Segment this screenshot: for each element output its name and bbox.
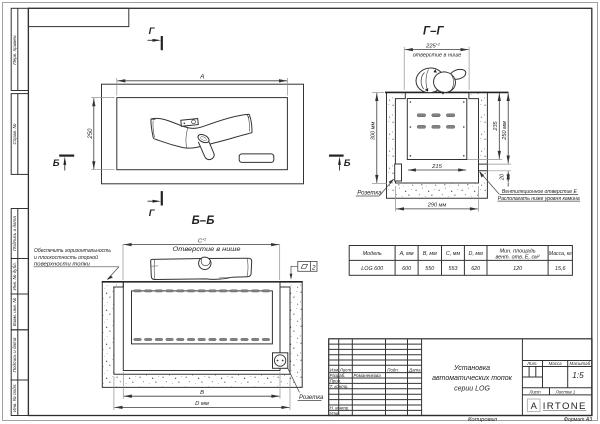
svg-text:250: 250	[88, 128, 94, 140]
svg-text:Обеспечить горизонтальность: Обеспечить горизонтальность	[34, 248, 111, 254]
svg-text:автоматических топок: автоматических топок	[432, 375, 513, 382]
svg-text:20: 20	[500, 173, 506, 181]
svg-text:120: 120	[513, 266, 522, 272]
svg-text:600: 600	[402, 266, 411, 272]
svg-text:LOG 600: LOG 600	[361, 266, 383, 272]
svg-text:Дата: Дата	[408, 367, 421, 372]
svg-text:В, мм: В, мм	[423, 251, 437, 257]
svg-text:Справ. №: Справ. №	[12, 124, 17, 145]
svg-text:Подпись и дата: Подпись и дата	[12, 216, 17, 251]
svg-text:В: В	[200, 390, 204, 396]
svg-text:Т. контр.: Т. контр.	[330, 384, 349, 389]
svg-text:D мм: D мм	[195, 401, 209, 407]
svg-text:Инв. № дубл.: Инв. № дубл.	[12, 262, 17, 290]
svg-text:Утв.: Утв.	[330, 411, 340, 416]
svg-text:А: А	[199, 74, 204, 81]
svg-text:А, мм: А, мм	[399, 251, 414, 257]
svg-text:Установка: Установка	[453, 365, 490, 372]
svg-text:215: 215	[431, 164, 442, 170]
svg-text:Изм.: Изм.	[330, 367, 339, 372]
svg-text:Разраб.: Разраб.	[330, 373, 346, 378]
svg-text:Г–Г: Г–Г	[423, 26, 444, 38]
svg-text:Лист: Лист	[339, 367, 352, 372]
svg-text:300 мм: 300 мм	[371, 122, 377, 141]
svg-text:Пров.: Пров.	[330, 379, 342, 384]
svg-text:вент. отв. Е, см²: вент. отв. Е, см²	[496, 255, 540, 261]
svg-text:Н. контр.: Н. контр.	[330, 406, 350, 411]
svg-text:Романенкова: Романенкова	[354, 373, 382, 378]
svg-text:Листов 1: Листов 1	[555, 390, 576, 395]
svg-text:Лит.: Лит.	[526, 361, 537, 366]
svg-text:Перв. примен.: Перв. примен.	[12, 34, 17, 65]
svg-text:Подп.: Подп.	[387, 367, 399, 372]
svg-text:Масштаб: Масштаб	[570, 361, 591, 366]
svg-text:С, мм: С, мм	[446, 251, 461, 257]
svg-text:Б: Б	[53, 158, 60, 169]
svg-text:D, мм: D, мм	[469, 251, 484, 257]
svg-text:Масса: Масса	[549, 361, 563, 366]
svg-text:Отверстие в нише: Отверстие в нише	[173, 247, 242, 253]
svg-text:Подпись и дата: Подпись и дата	[12, 337, 17, 372]
svg-text:Лист: Лист	[528, 390, 541, 395]
svg-text:Инв. № подл.: Инв. № подл.	[12, 383, 17, 412]
svg-text:Копировал: Копировал	[468, 417, 497, 423]
svg-text:250 мм: 250 мм	[502, 121, 508, 141]
svg-text:Масса, кг: Масса, кг	[549, 251, 572, 257]
svg-text:620: 620	[471, 266, 480, 272]
svg-text:1:5: 1:5	[572, 371, 584, 380]
svg-text:15,6: 15,6	[555, 266, 566, 272]
svg-text:A: A	[531, 400, 538, 411]
svg-text:Б: Б	[344, 158, 351, 169]
svg-text:553: 553	[449, 266, 458, 272]
svg-text:IRTONE: IRTONE	[543, 401, 587, 412]
svg-text:и плоскостность опорной: и плоскостность опорной	[34, 254, 98, 261]
svg-text:235: 235	[493, 120, 499, 131]
svg-text:Взам. инв. №: Взам. инв. №	[12, 298, 17, 326]
svg-text:Б–Б: Б–Б	[192, 215, 215, 227]
svg-text:2: 2	[311, 264, 316, 271]
svg-text:290 мм: 290 мм	[427, 203, 447, 209]
svg-text:Формат А3: Формат А3	[564, 417, 592, 423]
svg-text:Модель: Модель	[363, 251, 382, 257]
svg-text:серии LOG: серии LOG	[454, 386, 490, 393]
svg-text:550: 550	[425, 266, 434, 272]
svg-text:отверстие в нише: отверстие в нише	[413, 52, 462, 58]
